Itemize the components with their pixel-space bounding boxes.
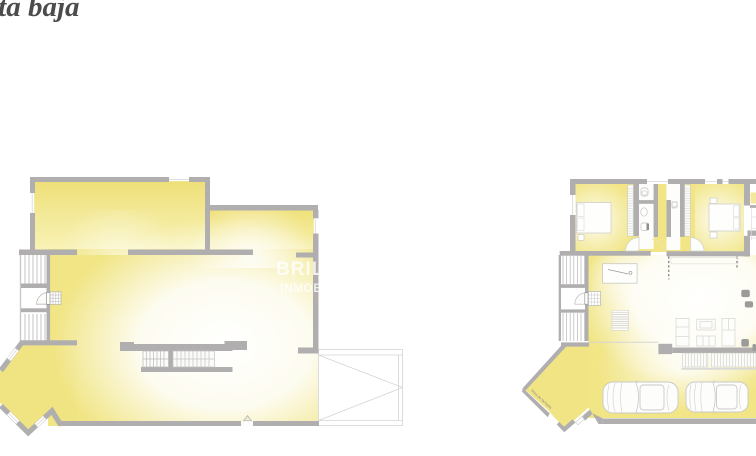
svg-text:INMOBILIARIA: INMOBILIARIA <box>280 281 369 295</box>
svg-text:BRILLANTE: BRILLANTE <box>276 259 393 280</box>
svg-text:planta baja: planta baja <box>0 0 80 23</box>
